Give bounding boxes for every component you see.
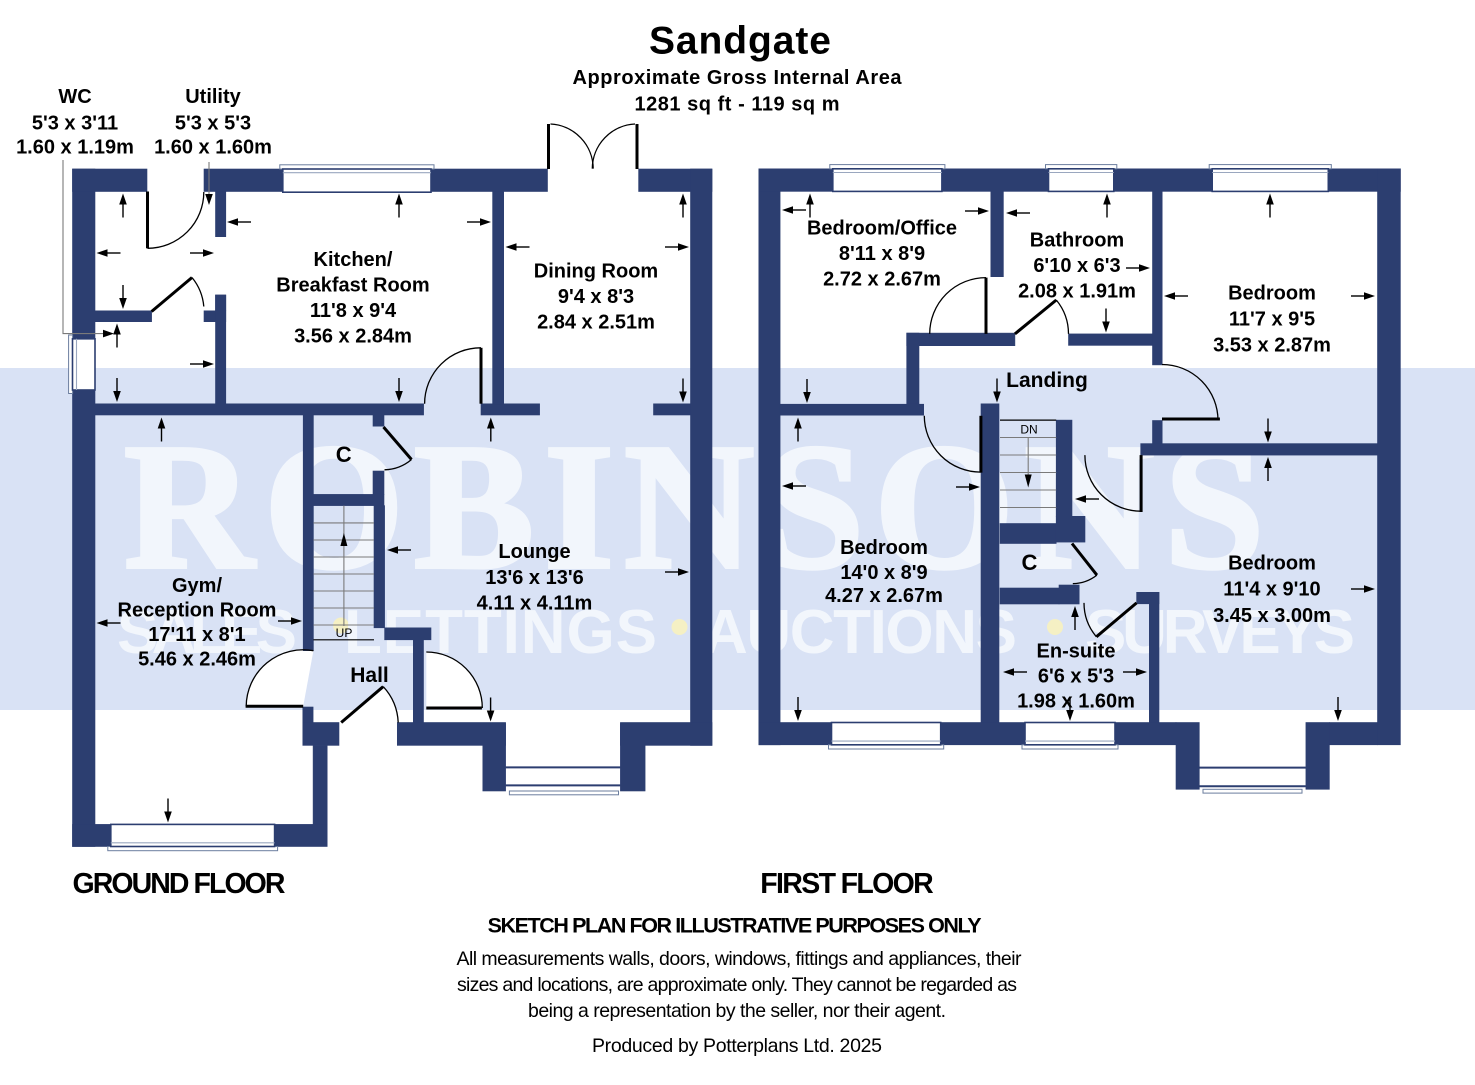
svg-text:AUCTIONS: AUCTIONS — [703, 598, 1017, 667]
svg-text:sizes and locations, are appro: sizes and locations, are approximate onl… — [457, 974, 1017, 996]
svg-text:SKETCH PLAN FOR ILLUSTRATIVE P: SKETCH PLAN FOR ILLUSTRATIVE PURPOSES ON… — [488, 914, 982, 938]
svg-text:Kitchen/: Kitchen/ — [314, 249, 393, 271]
svg-text:Bathroom: Bathroom — [1030, 230, 1124, 252]
svg-text:4.11 x 4.11m: 4.11 x 4.11m — [477, 593, 593, 615]
svg-text:11'7 x 9'5: 11'7 x 9'5 — [1229, 309, 1315, 331]
svg-text:Bedroom: Bedroom — [840, 537, 928, 559]
svg-text:5'3 x 3'11: 5'3 x 3'11 — [32, 113, 118, 135]
svg-text:UP: UP — [336, 626, 353, 640]
svg-text:1281 sq ft - 119 sq m: 1281 sq ft - 119 sq m — [635, 94, 840, 116]
svg-text:1.60 x 1.60m: 1.60 x 1.60m — [154, 137, 272, 159]
svg-text:Reception Room: Reception Room — [118, 600, 277, 622]
svg-text:En-suite: En-suite — [1037, 641, 1116, 663]
svg-text:DN: DN — [1020, 423, 1037, 437]
svg-text:5'3 x 5'3: 5'3 x 5'3 — [175, 113, 251, 135]
svg-text:Bedroom/Office: Bedroom/Office — [807, 218, 957, 240]
svg-text:5.46 x 2.46m: 5.46 x 2.46m — [138, 649, 256, 671]
svg-text:9'4 x 8'3: 9'4 x 8'3 — [558, 286, 634, 308]
svg-text:being a representation by the: being a representation by the seller, no… — [528, 1000, 946, 1022]
svg-text:Breakfast Room: Breakfast Room — [276, 275, 429, 297]
svg-text:17'11 x 8'1: 17'11 x 8'1 — [148, 624, 245, 646]
svg-text:Bedroom: Bedroom — [1228, 553, 1316, 575]
svg-text:Approximate Gross Internal Are: Approximate Gross Internal Area — [573, 67, 903, 89]
svg-text:Landing: Landing — [1006, 369, 1088, 392]
svg-text:11'8 x 9'4: 11'8 x 9'4 — [310, 300, 397, 322]
svg-text:2.72 x 2.67m: 2.72 x 2.67m — [823, 269, 941, 291]
svg-text:C: C — [1022, 550, 1038, 575]
svg-text:Hall: Hall — [350, 664, 389, 687]
svg-text:3.53 x 2.87m: 3.53 x 2.87m — [1213, 335, 1331, 357]
svg-text:3.45 x 3.00m: 3.45 x 3.00m — [1213, 605, 1331, 627]
svg-text:Dining Room: Dining Room — [534, 261, 658, 283]
svg-text:11'4 x 9'10: 11'4 x 9'10 — [1223, 579, 1320, 601]
svg-text:1.60 x 1.19m: 1.60 x 1.19m — [16, 137, 134, 159]
svg-text:Gym/: Gym/ — [172, 575, 222, 597]
svg-text:6'10 x 6'3: 6'10 x 6'3 — [1033, 255, 1120, 277]
svg-text:Utility: Utility — [185, 86, 241, 108]
svg-text:8'11 x 8'9: 8'11 x 8'9 — [839, 243, 925, 265]
svg-text:Lounge: Lounge — [498, 541, 570, 563]
svg-text:All measurements walls, doors,: All measurements walls, doors, windows, … — [457, 948, 1023, 970]
svg-text:C: C — [336, 442, 352, 467]
svg-text:FIRST FLOOR: FIRST FLOOR — [760, 868, 934, 900]
svg-text:14'0 x 8'9: 14'0 x 8'9 — [840, 562, 927, 584]
svg-text:GROUND FLOOR: GROUND FLOOR — [73, 868, 286, 900]
svg-text:Sandgate: Sandgate — [649, 20, 831, 63]
svg-text:3.56 x 2.84m: 3.56 x 2.84m — [294, 326, 412, 348]
svg-text:6'6 x 5'3: 6'6 x 5'3 — [1038, 666, 1114, 688]
svg-text:WC: WC — [58, 86, 91, 108]
svg-text:2.08 x 1.91m: 2.08 x 1.91m — [1018, 281, 1136, 303]
svg-text:2.84 x 2.51m: 2.84 x 2.51m — [537, 312, 655, 334]
svg-text:4.27 x 2.67m: 4.27 x 2.67m — [825, 585, 943, 607]
svg-text:13'6 x 13'6: 13'6 x 13'6 — [485, 567, 584, 589]
svg-text:1.98 x 1.60m: 1.98 x 1.60m — [1017, 691, 1135, 713]
svg-text:Produced by Potterplans Ltd. 2: Produced by Potterplans Ltd. 2025 — [592, 1035, 882, 1057]
svg-text:Bedroom: Bedroom — [1228, 283, 1316, 305]
